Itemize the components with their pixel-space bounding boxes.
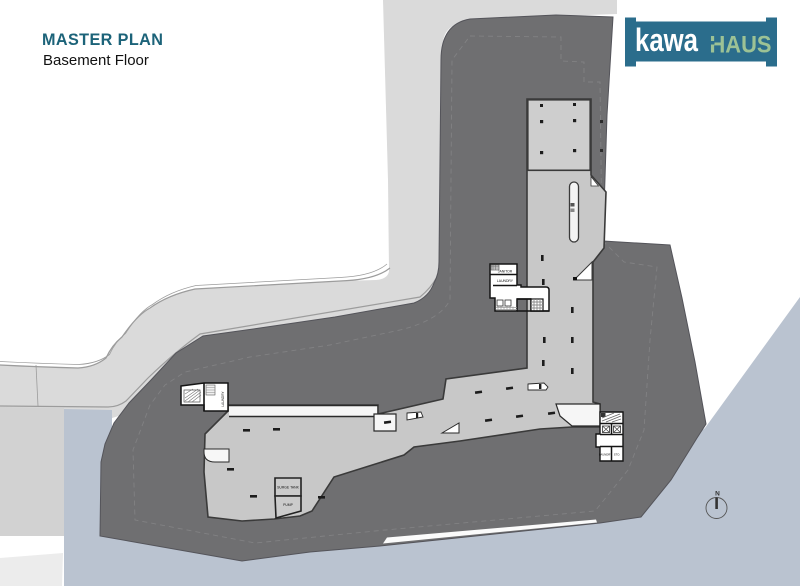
- svg-text:PUMP: PUMP: [283, 503, 294, 507]
- svg-text:Basement Floor: Basement Floor: [43, 52, 149, 69]
- svg-text:N: N: [715, 491, 720, 498]
- svg-text:MASTER PLAN: MASTER PLAN: [42, 31, 163, 49]
- svg-text:STO.: STO.: [614, 453, 621, 457]
- svg-text:LAUNDRY: LAUNDRY: [497, 279, 514, 283]
- svg-text:kawa: kawa: [635, 22, 698, 58]
- svg-text:LAUNDRY: LAUNDRY: [599, 453, 612, 457]
- svg-text:LAUNDRY: LAUNDRY: [221, 391, 225, 407]
- svg-text:HAUS: HAUS: [710, 32, 772, 59]
- svg-text:JANITOR: JANITOR: [498, 270, 513, 274]
- svg-text:SURGE TANK: SURGE TANK: [277, 486, 299, 490]
